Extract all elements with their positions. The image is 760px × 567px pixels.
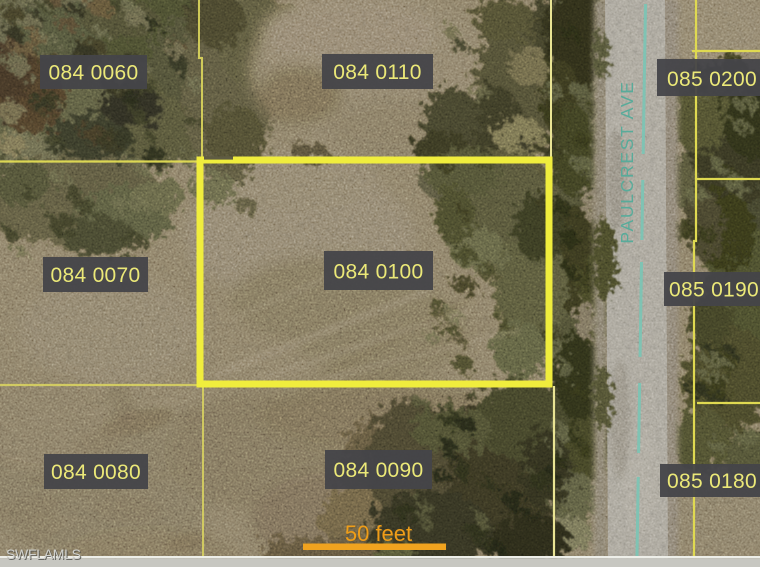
svg-text:085 0200: 085 0200 — [667, 68, 757, 91]
svg-text:084 0110: 084 0110 — [333, 61, 421, 84]
svg-text:50 feet: 50 feet — [345, 521, 412, 546]
svg-text:084 0060: 084 0060 — [49, 62, 139, 85]
svg-text:084 0100: 084 0100 — [334, 261, 424, 284]
svg-text:085 0180: 085 0180 — [667, 470, 757, 493]
svg-text:084 0090: 084 0090 — [334, 459, 424, 482]
svg-text:085 0190: 085 0190 — [669, 279, 759, 302]
svg-text:084 0080: 084 0080 — [51, 461, 141, 484]
svg-text:SWFLAMLS: SWFLAMLS — [6, 546, 81, 562]
svg-text:084 0070: 084 0070 — [51, 264, 141, 287]
svg-text:PAULCREST AVE: PAULCREST AVE — [617, 80, 637, 243]
